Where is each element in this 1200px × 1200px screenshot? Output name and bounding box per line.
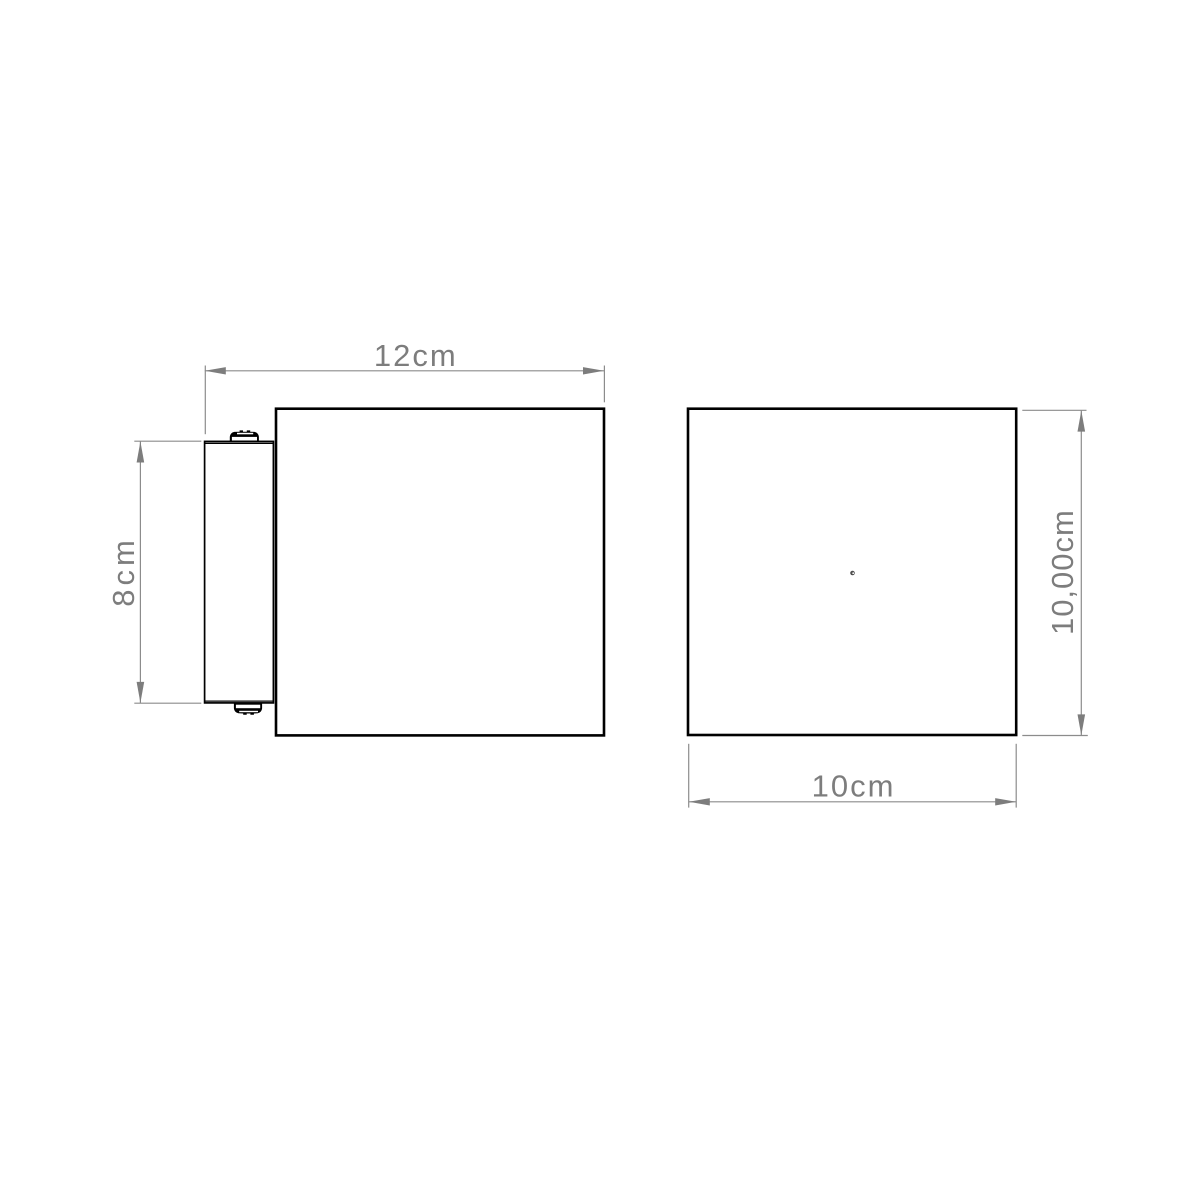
svg-text:10cm: 10cm (812, 769, 896, 804)
svg-text:12cm: 12cm (374, 338, 458, 373)
svg-text:10,00cm: 10,00cm (1045, 509, 1080, 635)
svg-text:8cm: 8cm (106, 536, 141, 607)
